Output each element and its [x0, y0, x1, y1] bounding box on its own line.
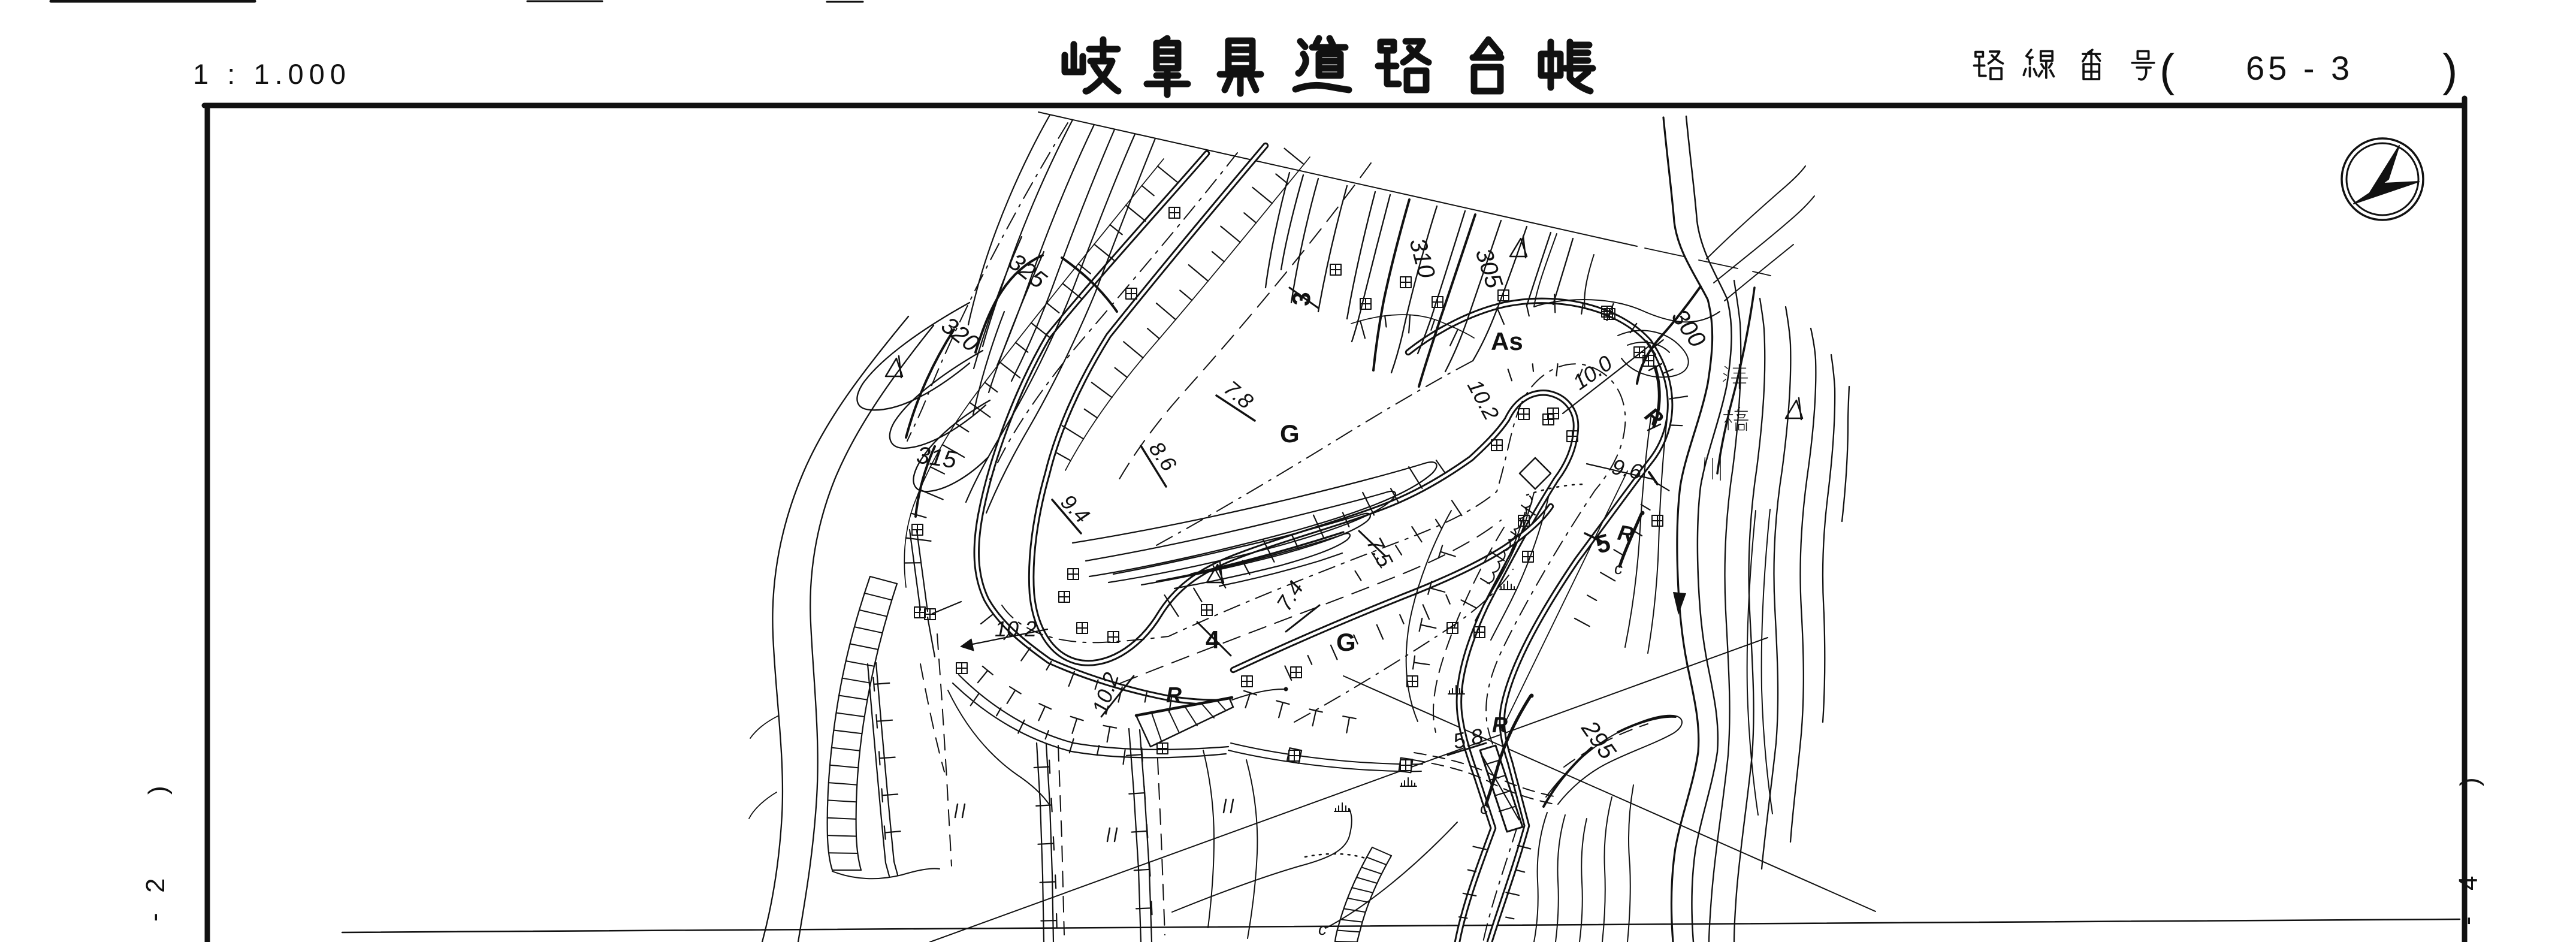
svg-text:): ): [143, 786, 173, 795]
svg-text:5: 5: [1593, 528, 1614, 558]
svg-text:c: c: [1480, 799, 1488, 817]
svg-text:c: c: [1614, 559, 1623, 578]
svg-text:315: 315: [915, 442, 959, 473]
svg-text:R: R: [1166, 683, 1182, 707]
svg-text:G: G: [1336, 628, 1356, 656]
svg-text:305: 305: [1470, 245, 1508, 292]
svg-text:4: 4: [2454, 876, 2483, 890]
svg-text:R: R: [1616, 520, 1636, 547]
svg-text:(: (: [2160, 45, 2175, 96]
svg-text:9.6: 9.6: [1609, 454, 1644, 485]
svg-text:G: G: [1280, 419, 1300, 448]
svg-text:7.4: 7.4: [1272, 576, 1308, 615]
svg-text:3: 3: [1287, 291, 1316, 307]
svg-text:310: 310: [1404, 236, 1440, 281]
svg-text:5.8: 5.8: [1451, 723, 1485, 754]
svg-text:1 : 1.000: 1 : 1.000: [193, 58, 351, 90]
svg-text:c: c: [1318, 920, 1327, 938]
svg-text:R: R: [1640, 402, 1668, 431]
svg-text:65 - 3: 65 - 3: [2246, 49, 2353, 87]
svg-text:-: -: [2453, 916, 2482, 925]
svg-text:7.8: 7.8: [1219, 376, 1258, 414]
svg-text:10.0: 10.0: [1568, 351, 1617, 395]
svg-text:8.6: 8.6: [1144, 437, 1182, 476]
svg-text:10.2: 10.2: [1463, 376, 1504, 424]
svg-text:300: 300: [1666, 304, 1711, 352]
svg-text:R: R: [1492, 712, 1508, 737]
svg-text:As: As: [1491, 327, 1523, 355]
svg-text:4: 4: [1206, 626, 1220, 654]
svg-text:): ): [2442, 45, 2457, 96]
svg-text:-: -: [140, 913, 169, 922]
svg-text:): ): [2455, 777, 2484, 786]
svg-text:10.2: 10.2: [995, 617, 1037, 641]
svg-text:9.4: 9.4: [1056, 490, 1094, 528]
svg-text:2: 2: [141, 878, 170, 893]
svg-text:325: 325: [1003, 248, 1051, 294]
